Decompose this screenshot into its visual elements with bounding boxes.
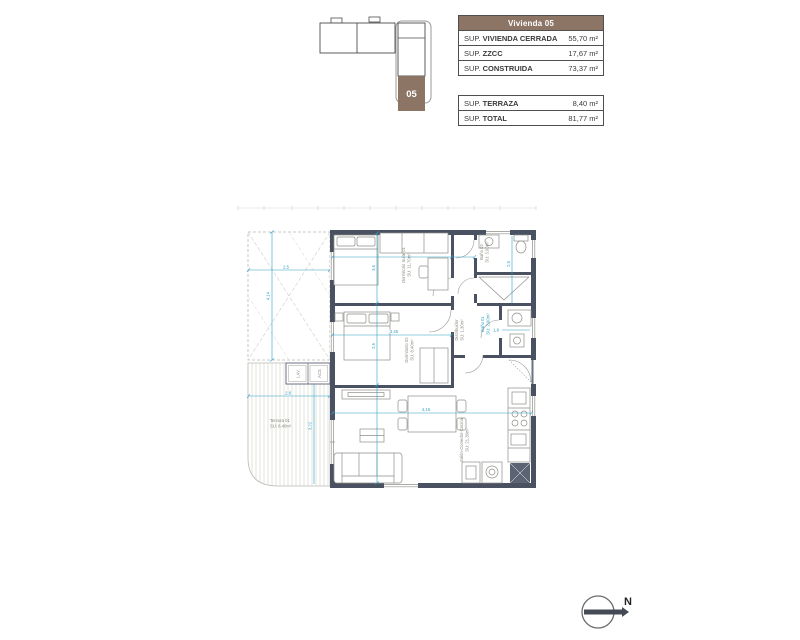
area-table-main: Vivienda 05 SUP. VIVIENDA CERRADA 55,70 … <box>458 15 604 76</box>
salon-furniture <box>334 388 530 483</box>
dining-table <box>398 396 466 432</box>
key-plan: 05 <box>300 8 440 120</box>
svg-text:SU: 8,40m²: SU: 8,40m² <box>270 424 292 429</box>
row-value: 17,67 m² <box>568 49 598 58</box>
svg-text:Dormitorio Suite 01: Dormitorio Suite 01 <box>401 246 406 283</box>
table-row: SUP. TERRAZA 8,40 m² <box>459 96 603 110</box>
kitchen-counter <box>508 388 530 462</box>
suite-furniture <box>334 233 448 290</box>
svg-text:SU: 1,30m²: SU: 1,30m² <box>460 319 465 341</box>
bano01-fixtures <box>508 310 531 347</box>
top-dimension-chain <box>238 206 536 210</box>
sofa <box>334 453 402 483</box>
svg-text:SU: 8,40m²: SU: 8,40m² <box>410 339 415 361</box>
shower <box>479 277 529 300</box>
suite-bed <box>334 235 378 285</box>
svg-text:2,5: 2,5 <box>283 265 289 270</box>
dorm02-bed <box>344 312 390 360</box>
dorm02-nightstand <box>335 313 343 321</box>
washer <box>482 462 502 483</box>
svg-text:3,46: 3,46 <box>390 329 399 334</box>
dorm02-furniture <box>335 312 448 383</box>
north-arrow-tip <box>622 607 629 617</box>
window-bano01-right <box>531 318 536 338</box>
label-bano01: Baño 01 SU: 2,00m² <box>480 313 491 335</box>
svg-text:Salón-Comedor-Cocina: Salón-Comedor-Cocina <box>459 417 464 461</box>
closet-acs-label: ACS <box>317 369 322 378</box>
row-prefix: SUP. <box>464 49 481 58</box>
row-label: VIVIENDA CERRADA <box>483 34 558 43</box>
row-prefix: SUP. <box>464 64 481 73</box>
svg-text:Baño 01: Baño 01 <box>480 316 485 332</box>
table-gap <box>458 76 604 95</box>
label-dorm02: Dormitorio 02 SU: 8,40m² <box>404 337 415 363</box>
row-value: 81,77 m² <box>568 114 598 123</box>
kitchen-unit <box>462 462 480 483</box>
north-compass: N <box>572 588 644 638</box>
svg-text:Terraza 01: Terraza 01 <box>270 418 290 423</box>
label-distribuidor: Distribuidor SU: 1,30m² <box>454 319 465 341</box>
floorplan-page: 05 Vivienda 05 SUP. VIVIENDA CERRADA 55,… <box>0 0 800 640</box>
svg-text:4,16: 4,16 <box>422 407 431 412</box>
svg-text:Dormitorio 02: Dormitorio 02 <box>404 337 409 363</box>
dorm02-wardrobe <box>420 348 448 383</box>
row-value: 55,70 m² <box>568 34 598 43</box>
svg-text:2,8: 2,8 <box>285 391 291 396</box>
area-table-totals: SUP. TERRAZA 8,40 m² SUP. TOTAL 81,77 m² <box>458 95 604 126</box>
coffee-table <box>360 429 384 442</box>
floor-plan: 2,5 4,14 Terraza 01 <box>234 200 542 512</box>
svg-text:1,8: 1,8 <box>493 328 499 333</box>
entry-door <box>509 360 536 384</box>
svg-text:Distribuidor: Distribuidor <box>454 319 459 341</box>
row-label: ZZCC <box>483 49 503 58</box>
suite-desk <box>419 258 448 290</box>
table-row: SUP. TOTAL 81,77 m² <box>459 110 603 125</box>
table-row: SUP. VIVIENDA CERRADA 55,70 m² <box>459 31 603 45</box>
outdoor-area <box>248 232 330 360</box>
tiled-pad <box>510 463 530 483</box>
key-plan-unit-05: 05 <box>398 76 425 111</box>
row-prefix: SUP. <box>464 114 481 123</box>
row-prefix: SUP. <box>464 99 481 108</box>
area-table-header: Vivienda 05 <box>459 16 603 31</box>
svg-text:4,14: 4,14 <box>266 291 271 300</box>
row-prefix: SUP. <box>464 34 481 43</box>
svg-text:2,5: 2,5 <box>506 260 511 266</box>
dorm02-nightstand <box>391 313 399 321</box>
svg-text:3,6: 3,6 <box>371 264 376 270</box>
row-label: TERRAZA <box>483 99 519 108</box>
row-value: 73,37 m² <box>568 64 598 73</box>
utility-closets: LAV. ACS <box>286 363 330 384</box>
area-tables: Vivienda 05 SUP. VIVIENDA CERRADA 55,70 … <box>458 15 604 126</box>
row-label: TOTAL <box>483 114 507 123</box>
window-salon-bottom <box>384 483 418 488</box>
closet-lav-label: LAV. <box>296 369 301 377</box>
svg-text:2,6: 2,6 <box>371 342 376 348</box>
dim-bano02-vertical: 2,5 <box>506 236 512 303</box>
window-bano02-top <box>486 230 510 235</box>
dim-outdoor-height: 4,14 <box>266 231 275 362</box>
key-plan-unit-label: 05 <box>406 89 417 100</box>
window-dorm02 <box>330 322 335 352</box>
dim-bano01-horizontal: 1,8 <box>493 328 530 333</box>
svg-text:Baño 02: Baño 02 <box>479 244 484 260</box>
dim-outdoor-width: 2,5 <box>247 265 331 273</box>
window-bano02-right <box>531 240 536 258</box>
terrace-label: Terraza 01 SU: 8,40m² <box>270 418 292 429</box>
svg-text:SU: 3,00m²: SU: 3,00m² <box>485 241 490 263</box>
tv-bench <box>342 390 390 399</box>
svg-text:SU: 11,70m²: SU: 11,70m² <box>407 253 412 277</box>
row-value: 8,40 m² <box>573 99 598 108</box>
north-arrow <box>584 610 622 615</box>
svg-text:SU: 2,00m²: SU: 2,00m² <box>486 313 491 335</box>
table-row: SUP. CONSTRUIDA 73,37 m² <box>459 60 603 75</box>
svg-text:SU: 21,39m²: SU: 21,39m² <box>465 428 470 452</box>
table-row: SUP. ZZCC 17,67 m² <box>459 45 603 60</box>
north-label: N <box>624 596 632 608</box>
svg-text:3,22: 3,22 <box>308 421 313 430</box>
row-label: CONSTRUIDA <box>483 64 533 73</box>
suite-wardrobe <box>380 233 448 253</box>
